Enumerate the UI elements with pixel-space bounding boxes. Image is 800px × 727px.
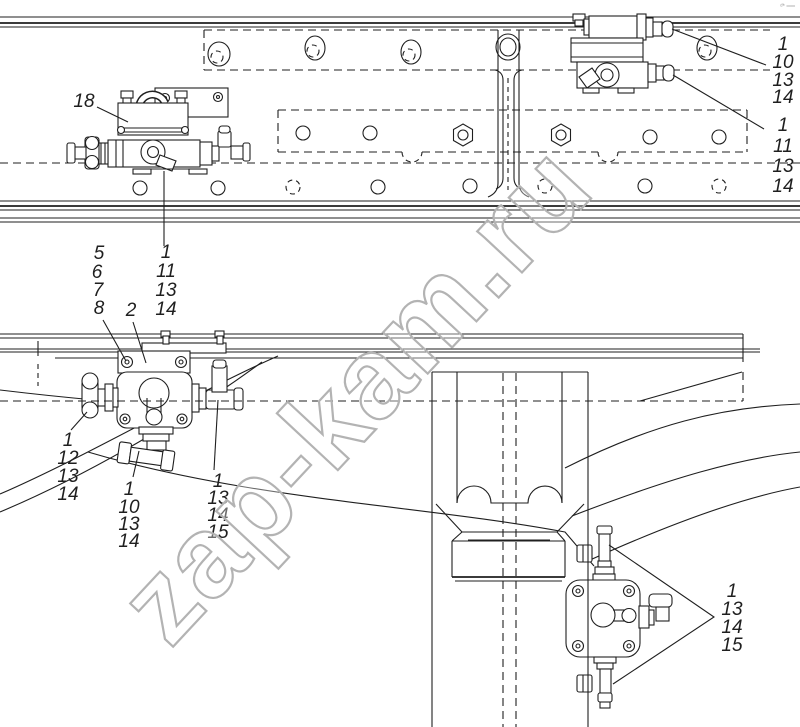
top-rail-bottom [0,201,800,222]
callout-2: 2 [125,300,137,321]
svg-text:8: 8 [94,298,105,319]
svg-text:13: 13 [155,280,177,301]
parts-diagram: 18 2 1 10 13 14 1 11 13 14 1 11 13 14 5 … [0,0,800,727]
svg-text:15: 15 [721,635,743,656]
svg-text:14: 14 [57,484,78,505]
svg-text:13: 13 [772,156,794,177]
svg-text:1: 1 [778,115,789,136]
valve-bottom-right [566,526,672,708]
crossmember-column [432,372,588,727]
top-flange-plate [204,30,770,70]
svg-text:14: 14 [155,299,176,320]
svg-text:14: 14 [772,176,793,197]
callout-stack-top-a: 1 10 13 14 [772,34,794,108]
callout-stack-mid-left: 1 12 13 14 [57,430,79,505]
svg-text:11: 11 [156,261,176,282]
callout-stack-mount: 5 6 7 8 [92,243,105,319]
callout-stack-left-valve: 1 11 13 14 [155,242,177,320]
callout-stack-bottom-right: 1 13 14 15 [721,581,743,656]
svg-text:11: 11 [773,136,793,157]
callout-18: 18 [73,91,95,112]
corner-mark: ᵈ* ══ [780,3,796,10]
svg-text:1: 1 [161,242,172,263]
rivet-row [133,179,726,195]
top-rail [0,17,800,27]
svg-text:14: 14 [772,87,793,108]
callout-stack-top-b: 1 11 13 14 [772,115,794,197]
diagram-canvas: 18 2 1 10 13 14 1 11 13 14 1 11 13 14 5 … [0,0,800,727]
valve-top-right [571,14,674,93]
svg-text:5: 5 [94,243,105,264]
